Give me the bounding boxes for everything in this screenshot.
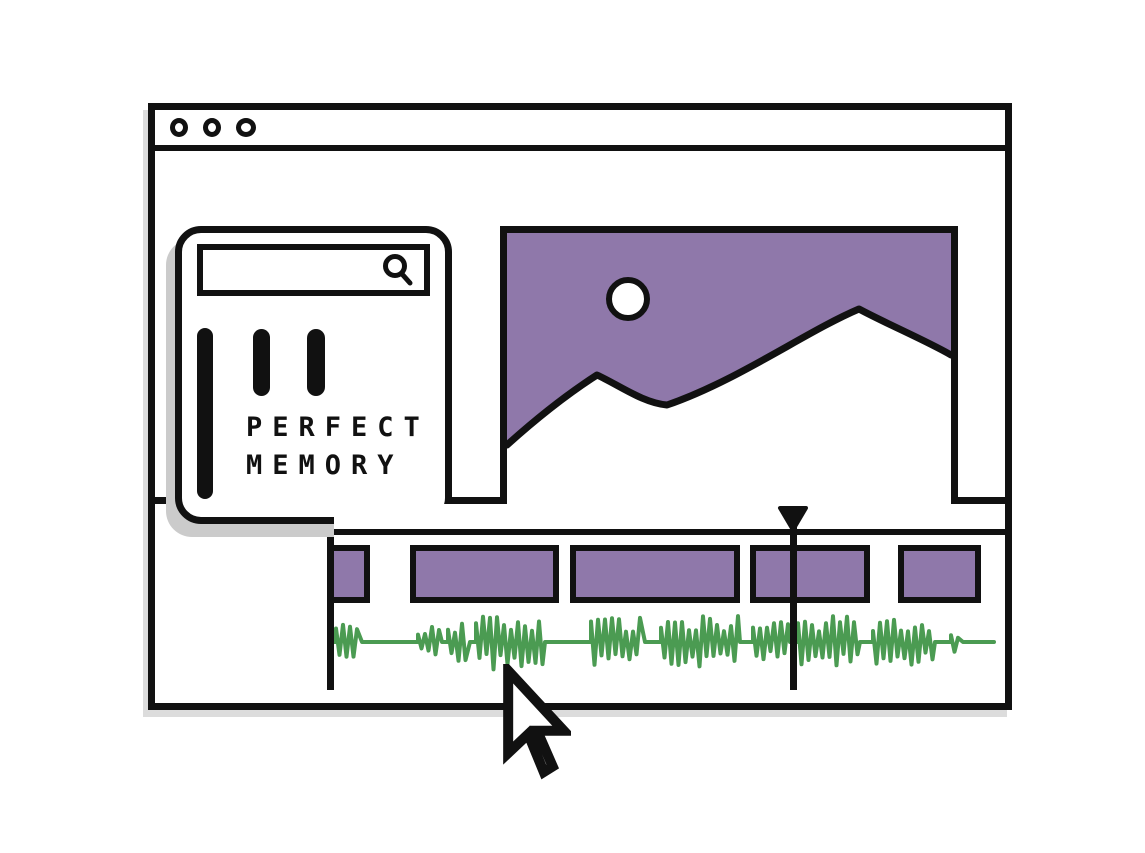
window-control-dot[interactable]: [236, 118, 256, 137]
mountain-graphic: [507, 309, 951, 521]
media-preview[interactable]: [500, 226, 958, 528]
logo-bar-icon: [197, 328, 213, 499]
window-control-dot[interactable]: [203, 118, 221, 137]
logo-bar-icon: [307, 329, 325, 396]
library-panel: PERFECT MEMORY: [175, 226, 452, 524]
search-input[interactable]: [203, 250, 382, 290]
main-content: PERFECT MEMORY: [155, 151, 1005, 504]
timeline-section: [155, 504, 1005, 690]
timeline-track[interactable]: [334, 504, 1005, 690]
brand-line-1: PERFECT: [246, 409, 430, 447]
search-box[interactable]: [197, 244, 430, 296]
window-titlebar: [155, 110, 1005, 151]
search-icon[interactable]: [382, 253, 414, 287]
brand-line-2: MEMORY: [246, 447, 430, 485]
window-control-dot[interactable]: [170, 118, 188, 137]
sun-icon: [609, 280, 647, 318]
audio-waveform[interactable]: [334, 504, 996, 690]
cursor-pointer-icon: [501, 664, 571, 782]
logo-bar-icon: [253, 329, 270, 396]
brand-name: PERFECT MEMORY: [246, 409, 430, 485]
browser-window: PERFECT MEMORY: [148, 103, 1012, 710]
timeline-side-panel: [155, 504, 334, 690]
playhead-line[interactable]: [790, 508, 797, 690]
window-controls: [170, 118, 256, 137]
